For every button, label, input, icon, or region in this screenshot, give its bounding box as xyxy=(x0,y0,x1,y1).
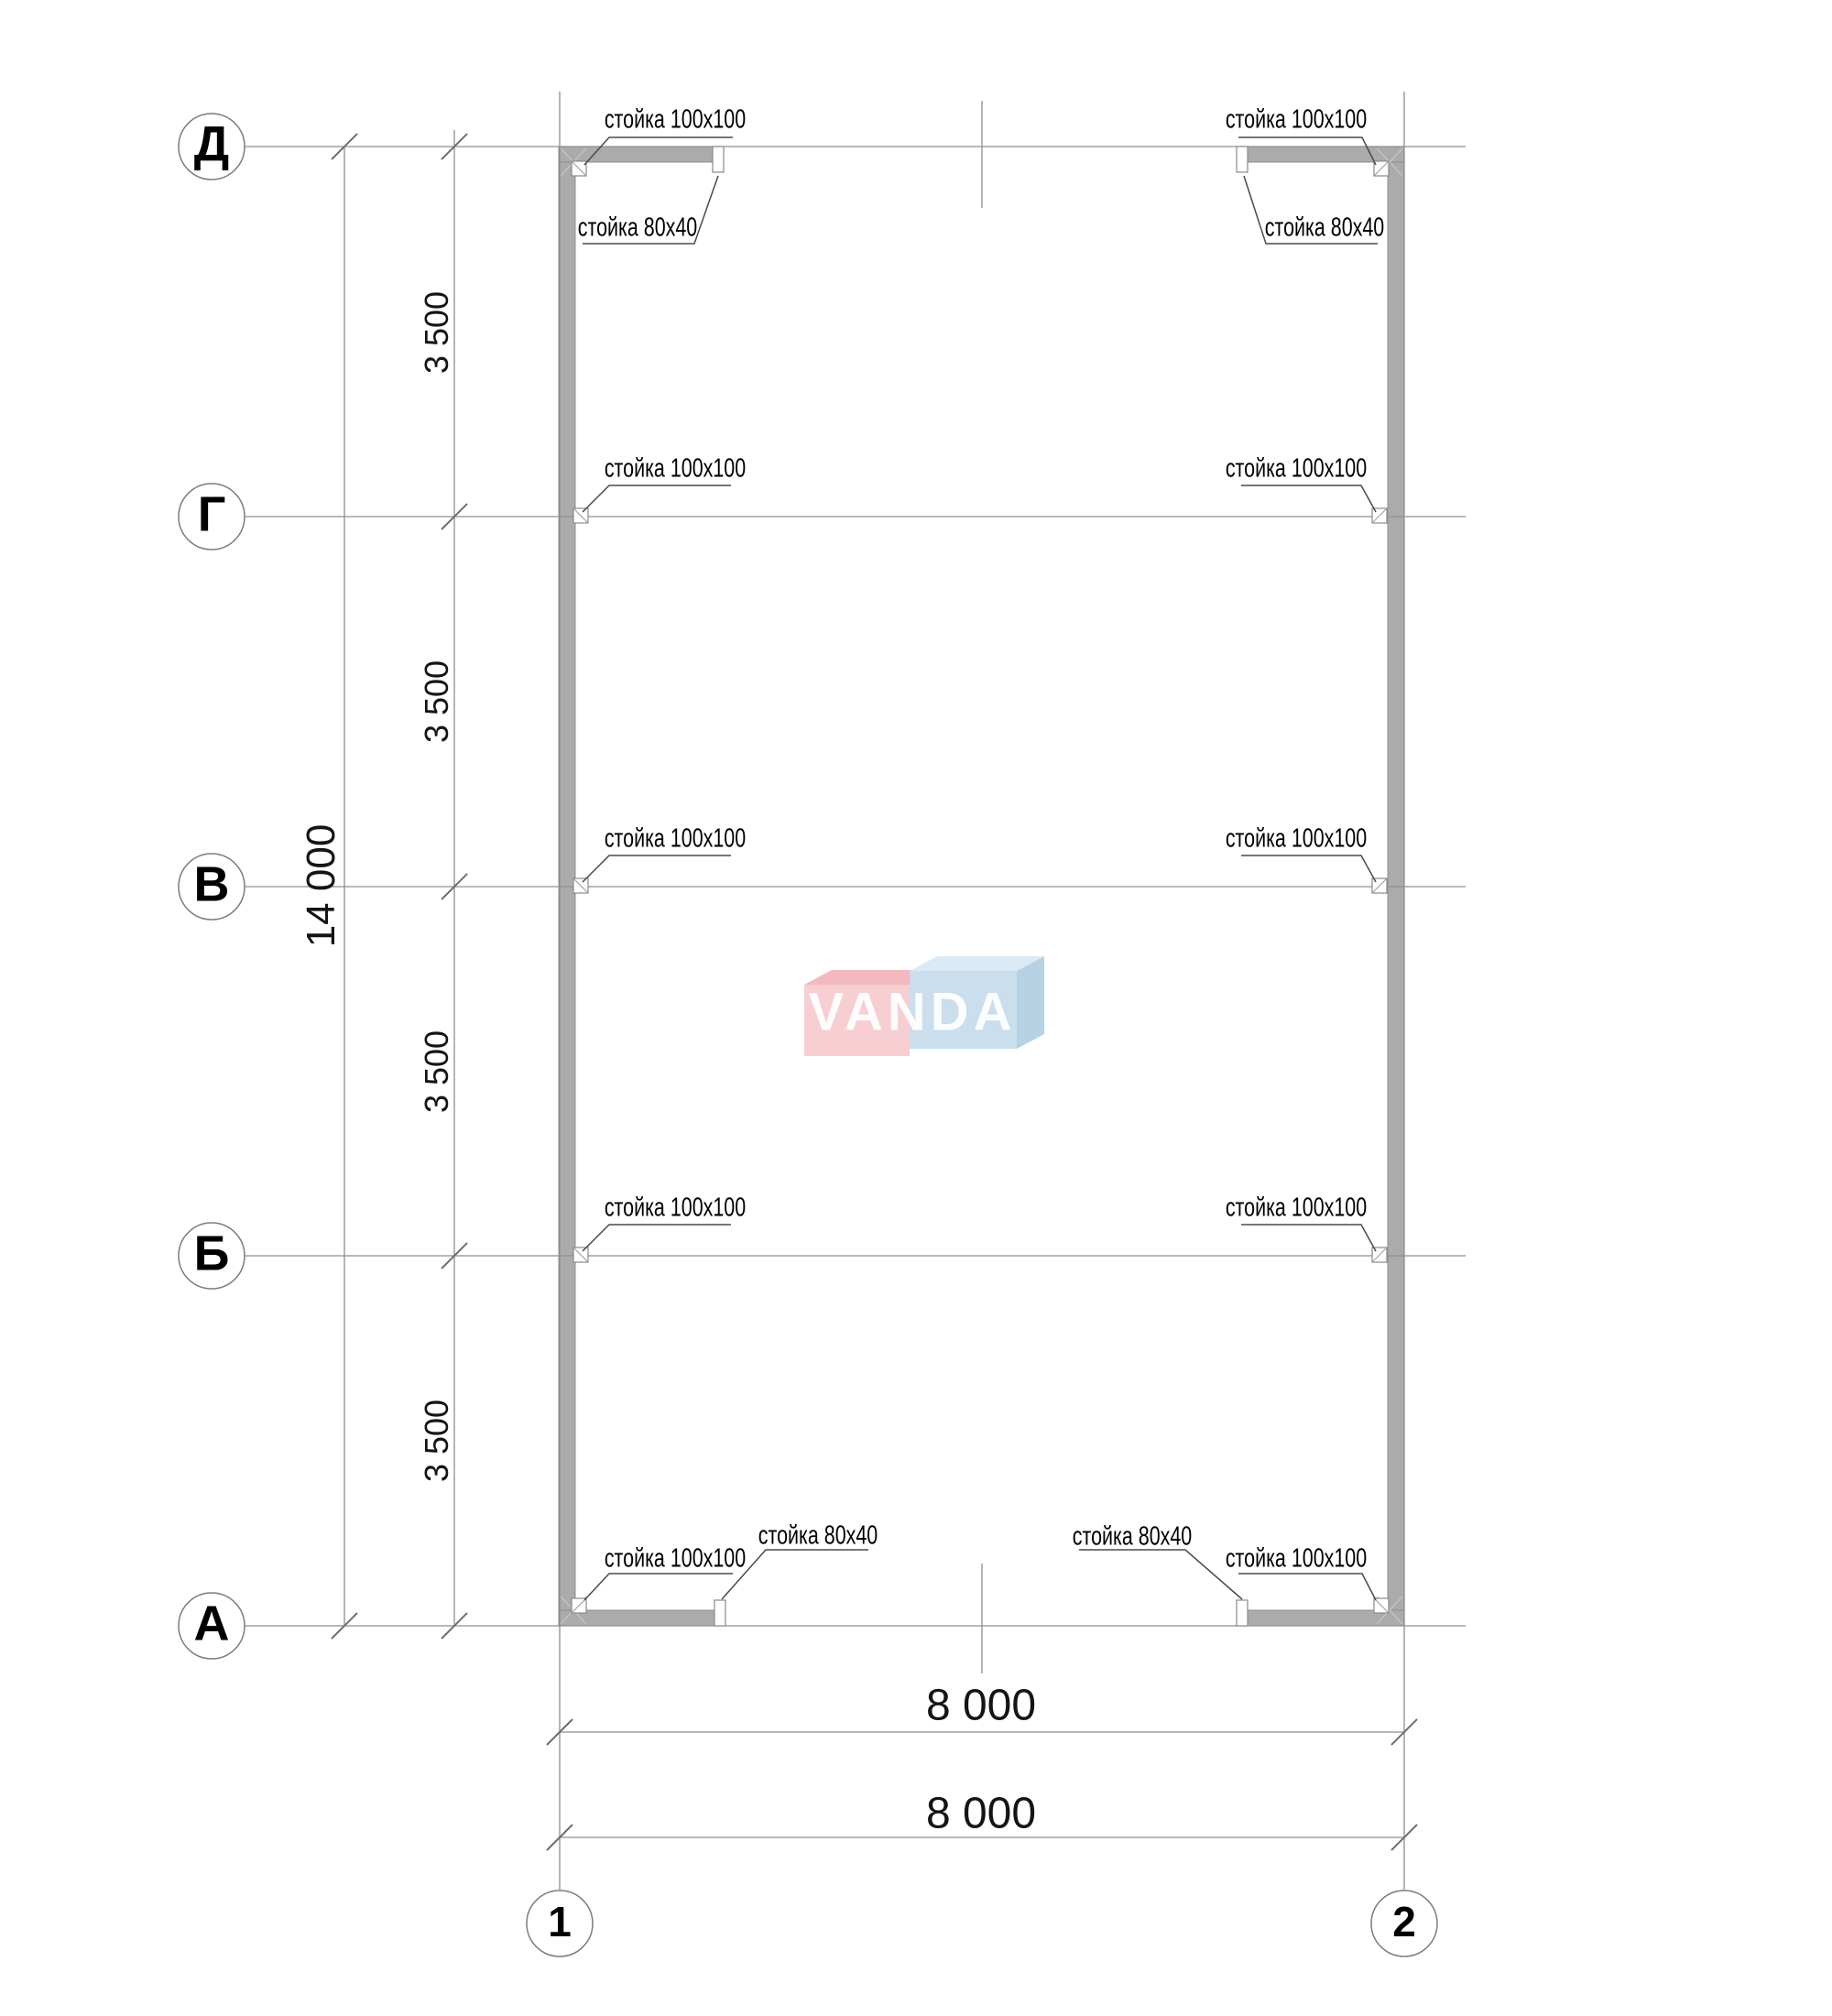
dim-width-bottom: 8 000 xyxy=(926,1789,1036,1839)
post100-label-D-right: стойка 100x100 xyxy=(1226,105,1367,136)
dim-total-height: 14 000 xyxy=(299,824,344,948)
axis-label-D: Д xyxy=(194,116,229,173)
post100-label-A-left: стойка 100x100 xyxy=(605,1544,746,1575)
floor-plan-sheet: VANDA Д Г В Б А 1 2 3 500 3 500 3 500 3 … xyxy=(0,0,1832,2016)
post80-label-A-left: стойка 80x40 xyxy=(758,1521,878,1552)
post100-label-A-right: стойка 100x100 xyxy=(1226,1544,1367,1575)
post-80-A-left xyxy=(714,1600,725,1626)
axis-label-1: 1 xyxy=(548,1897,572,1946)
post-80-D-right xyxy=(1237,147,1248,172)
post80-label-A-right: стойка 80x40 xyxy=(1073,1522,1192,1553)
wall-top-right xyxy=(1248,147,1404,162)
dim-bay-2: 3 500 xyxy=(418,660,456,743)
watermark-text: VANDA xyxy=(809,982,1017,1043)
leader-lines xyxy=(583,137,1378,1600)
dim-bay-3: 3 500 xyxy=(418,1030,456,1113)
axis-label-A: А xyxy=(194,1596,230,1652)
post100-label-V-left: стойка 100x100 xyxy=(605,824,746,855)
post100-label-B-left: стойка 100x100 xyxy=(605,1193,746,1224)
post100-label-G-left: стойка 100x100 xyxy=(605,454,746,485)
dim-width-top: 8 000 xyxy=(926,1681,1036,1731)
post100-label-G-right: стойка 100x100 xyxy=(1226,454,1367,485)
axis-label-B: Б xyxy=(194,1226,230,1282)
post-80-D-left xyxy=(713,147,724,172)
post-80-A-right xyxy=(1237,1600,1248,1626)
watermark-blue-side xyxy=(1017,956,1044,1049)
wall-top-left xyxy=(559,147,713,162)
dim-bay-1: 3 500 xyxy=(418,291,456,374)
dim-bay-4: 3 500 xyxy=(418,1400,456,1482)
axis-label-V: В xyxy=(194,856,230,913)
post80-label-D-left: стойка 80x40 xyxy=(578,213,697,244)
post80-label-D-right: стойка 80x40 xyxy=(1265,213,1384,244)
axis-label-2: 2 xyxy=(1392,1897,1416,1946)
axis-label-G: Г xyxy=(198,486,226,543)
post100-label-D-left: стойка 100x100 xyxy=(605,105,746,136)
post100-label-V-right: стойка 100x100 xyxy=(1226,824,1367,855)
post100-label-B-right: стойка 100x100 xyxy=(1226,1193,1367,1224)
